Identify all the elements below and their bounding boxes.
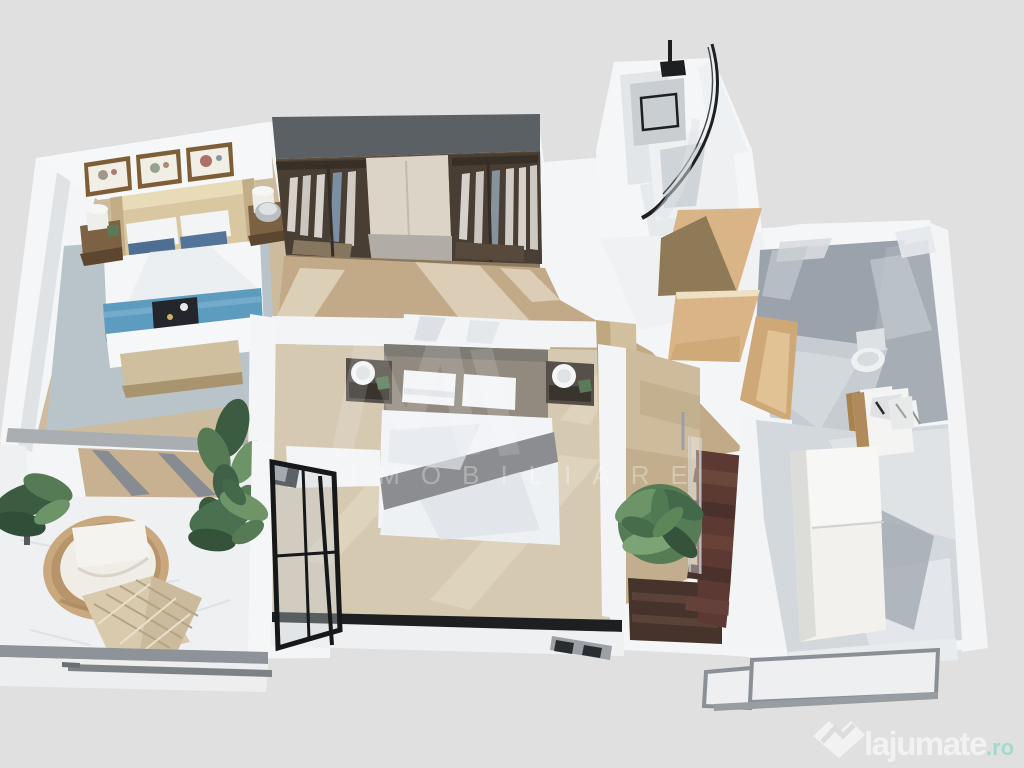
svg-text:.ro: .ro: [986, 735, 1014, 760]
svg-text:lajumate: lajumate: [864, 725, 987, 762]
svg-text:IMOBILIARE: IMOBILIARE: [350, 460, 709, 490]
